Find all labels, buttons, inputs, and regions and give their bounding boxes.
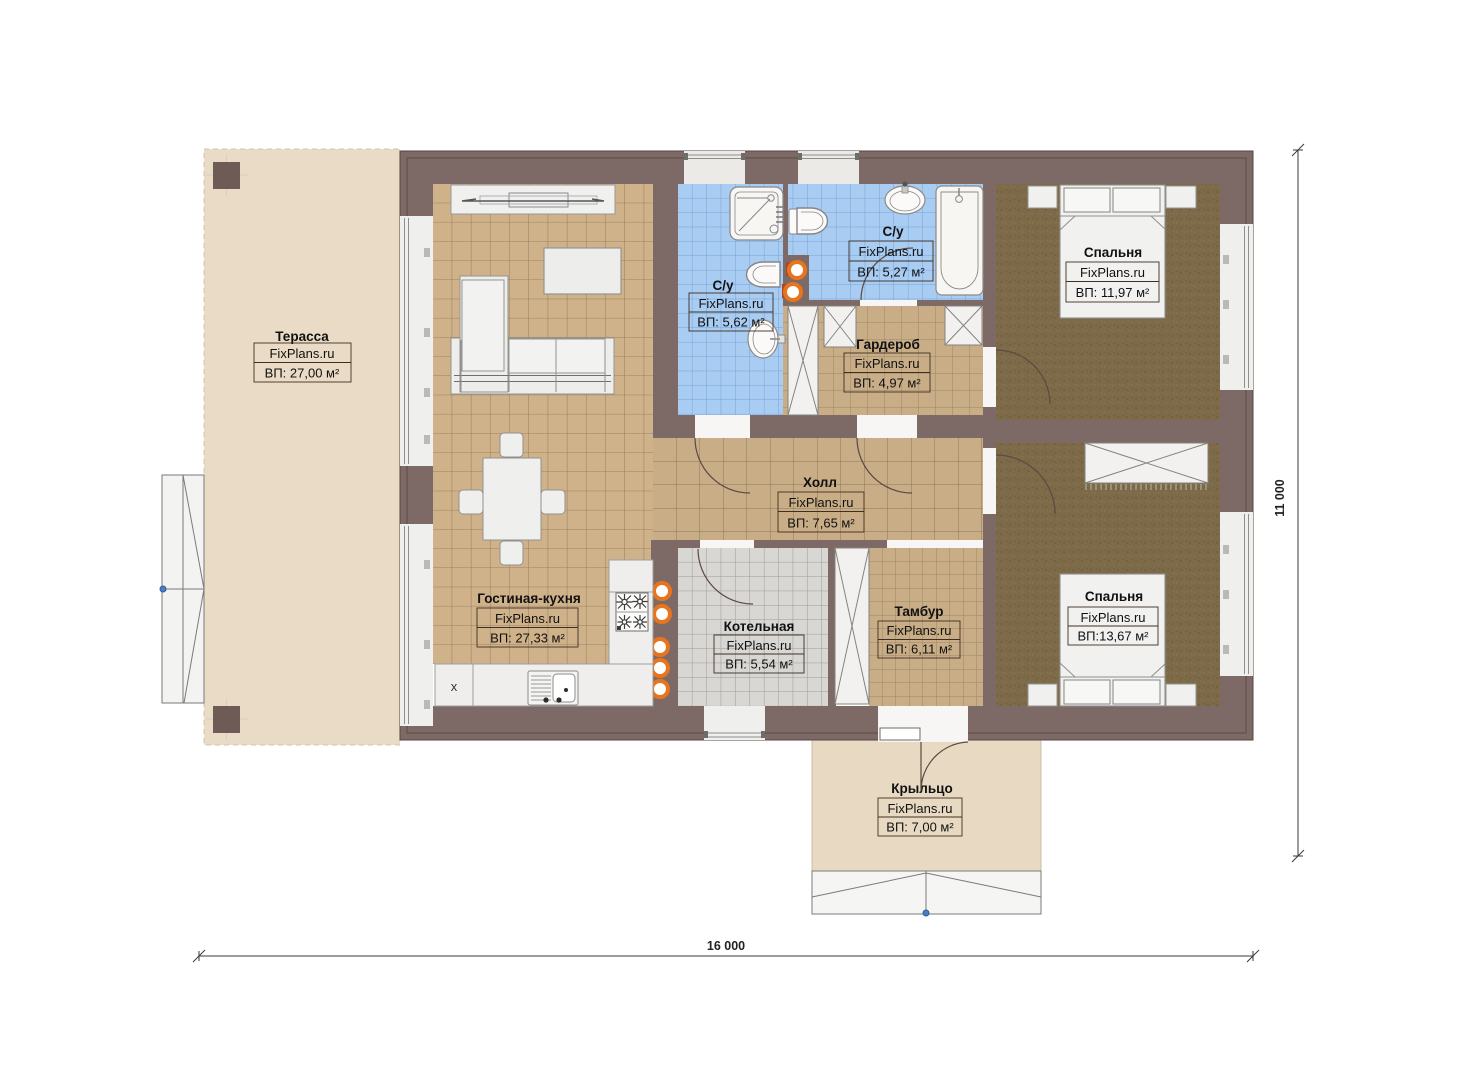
svg-text:С/у: С/у — [712, 278, 734, 293]
svg-text:Спальня: Спальня — [1084, 245, 1142, 260]
svg-text:ВП: 27,00 м²: ВП: 27,00 м² — [265, 366, 340, 381]
svg-text:ВП: 5,27 м²: ВП: 5,27 м² — [857, 265, 925, 280]
svg-text:ВП: 7,65 м²: ВП: 7,65 м² — [787, 516, 855, 531]
svg-text:FixPlans.ru: FixPlans.ru — [887, 801, 952, 816]
svg-text:ВП: 7,00 м²: ВП: 7,00 м² — [886, 820, 954, 835]
svg-text:Терасса: Терасса — [275, 329, 329, 344]
svg-text:FixPlans.ru: FixPlans.ru — [698, 296, 763, 311]
svg-text:x: x — [451, 679, 458, 694]
svg-text:ВП: 4,97 м²: ВП: 4,97 м² — [853, 376, 921, 391]
svg-text:Гардероб: Гардероб — [856, 337, 920, 352]
svg-text:FixPlans.ru: FixPlans.ru — [854, 356, 919, 371]
svg-text:FixPlans.ru: FixPlans.ru — [1080, 610, 1145, 625]
svg-text:FixPlans.ru: FixPlans.ru — [858, 244, 923, 259]
svg-text:FixPlans.ru: FixPlans.ru — [269, 346, 334, 361]
svg-text:Холл: Холл — [803, 475, 837, 490]
svg-text:Котельная: Котельная — [724, 619, 795, 634]
svg-text:Тамбур: Тамбур — [895, 604, 944, 619]
svg-text:ВП: 6,11 м²: ВП: 6,11 м² — [886, 642, 953, 657]
svg-text:ВП: 5,54 м²: ВП: 5,54 м² — [725, 657, 793, 672]
svg-text:Спальня: Спальня — [1085, 589, 1143, 604]
svg-text:16 000: 16 000 — [707, 939, 745, 953]
svg-text:С/у: С/у — [882, 224, 904, 239]
svg-text:FixPlans.ru: FixPlans.ru — [1080, 265, 1145, 280]
svg-text:Гостиная-кухня: Гостиная-кухня — [477, 591, 580, 606]
svg-text:ВП: 11,97 м²: ВП: 11,97 м² — [1076, 285, 1150, 300]
svg-text:FixPlans.ru: FixPlans.ru — [886, 623, 951, 638]
svg-text:ВП:13,67 м²: ВП:13,67 м² — [1077, 629, 1149, 644]
svg-text:ВП: 5,62 м²: ВП: 5,62 м² — [697, 315, 765, 330]
svg-text:FixPlans.ru: FixPlans.ru — [788, 495, 853, 510]
svg-text:ВП: 27,33 м²: ВП: 27,33 м² — [490, 631, 565, 646]
svg-text:11 000: 11 000 — [1273, 479, 1287, 517]
svg-text:FixPlans.ru: FixPlans.ru — [726, 638, 791, 653]
svg-text:FixPlans.ru: FixPlans.ru — [495, 611, 560, 626]
